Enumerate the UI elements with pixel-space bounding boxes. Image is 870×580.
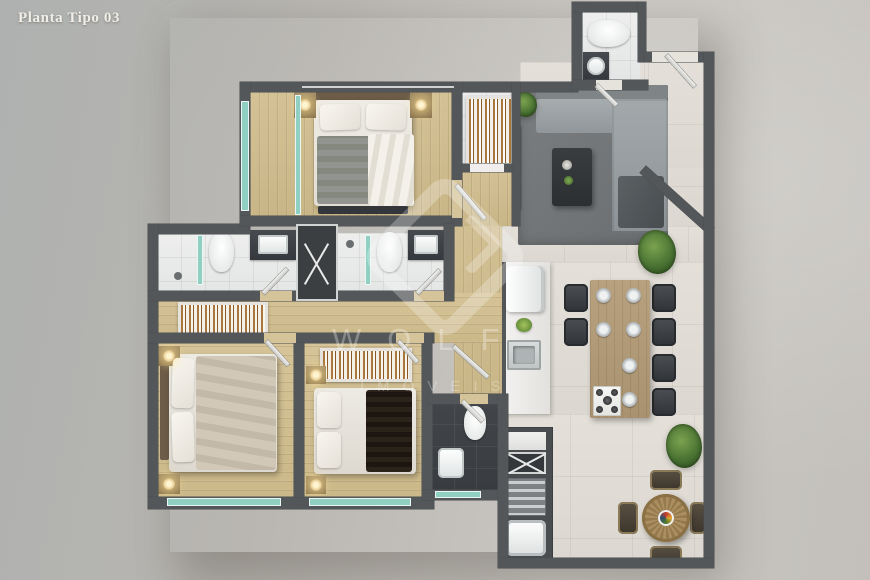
place-setting — [626, 322, 641, 337]
suite-pillow-right — [366, 103, 407, 130]
powder-room-toilet — [588, 20, 630, 47]
wall-left-outer — [148, 224, 158, 509]
bedroomA-pillow-1 — [171, 358, 195, 409]
wall-bath2-right — [444, 224, 454, 301]
cooktop-burner-1 — [596, 389, 603, 396]
living-plant — [638, 230, 676, 274]
drying-rack — [506, 478, 546, 516]
refrigerator — [506, 266, 544, 312]
coffee-table-plant-decor — [564, 176, 573, 185]
service-bathroom-sink — [438, 448, 464, 478]
cooktop-burner-5 — [611, 406, 618, 413]
bathroom1-shower-head — [174, 272, 182, 280]
cooktop-burner-3 — [603, 396, 612, 405]
suite-lamp-right — [415, 99, 427, 111]
suite-duvet-white — [368, 134, 414, 206]
bedroomB-window — [310, 499, 410, 505]
cooktop-burner-2 — [611, 389, 618, 396]
island-chair-6 — [652, 388, 676, 416]
bedroomA-lamp-top — [163, 350, 175, 362]
suite-pillow-left — [320, 103, 361, 130]
bedroomA-blanket — [196, 356, 276, 470]
bathroom2-sink — [414, 235, 438, 254]
wall-laundry-left — [498, 394, 508, 568]
wall-living-top — [520, 82, 578, 92]
threshold-closet — [470, 164, 504, 172]
servicebath-window — [436, 492, 480, 497]
island-chair-3 — [652, 284, 676, 312]
fruit-bowl — [516, 318, 532, 332]
bathroom2-toilet — [377, 232, 402, 272]
bedroomB-pillow-2 — [317, 432, 341, 468]
wall-powder-left — [572, 2, 582, 90]
suite-window-frame — [302, 86, 454, 88]
bathroom2-shower-glass — [366, 236, 370, 284]
wall-suite-bottom — [240, 216, 454, 226]
duct-shaft — [296, 224, 338, 301]
island-chair-5 — [652, 354, 676, 382]
place-setting — [626, 288, 641, 303]
wall-powder-top — [572, 2, 646, 12]
bedroomB-wardrobe-hangers — [320, 348, 412, 382]
bedroomB-dark-throw — [366, 390, 412, 472]
wall-bedroom-divider — [294, 343, 304, 497]
bedroomB-lamp-top — [310, 369, 322, 381]
terrace-chair-north — [650, 470, 682, 490]
laundry-shaft-x — [506, 452, 546, 474]
place-setting — [622, 358, 637, 373]
bathroom1-shower-glass — [198, 236, 202, 284]
laundry-tub — [506, 520, 546, 556]
island-chair-1 — [564, 284, 588, 312]
suite-closet-hangers — [466, 96, 514, 166]
bathroom1-toilet — [209, 232, 234, 272]
laundry-counter — [506, 432, 546, 450]
bathroom1-sink — [258, 235, 288, 254]
threshold-entry — [652, 52, 698, 62]
powder-room-sink — [587, 57, 605, 75]
wall-step-left — [148, 224, 250, 234]
wall-right-outer — [704, 52, 714, 568]
coffee-table-decor — [562, 160, 572, 170]
kitchen-sink-basin — [513, 346, 535, 364]
place-setting — [622, 392, 637, 407]
terrace-plant — [666, 424, 702, 468]
suite-balcony-window — [242, 102, 248, 210]
place-setting — [596, 322, 611, 337]
table-centerpiece — [658, 510, 674, 526]
wall-closet-right — [512, 82, 520, 226]
wall-bottom-right — [498, 558, 714, 568]
bedroomB-lamp-bottom — [310, 479, 322, 491]
suite-foot-bench — [318, 206, 408, 214]
cooktop-burner-4 — [596, 406, 603, 413]
bedroomB-pillow-1 — [317, 392, 341, 428]
floor-plan-render: WOLF IMÓVEIS Planta Tipo 03 — [0, 0, 870, 580]
bathroom2-shower-head — [346, 240, 354, 248]
bedroomA-lamp-bottom — [163, 478, 175, 490]
island-chair-4 — [652, 318, 676, 346]
bedroomA-window — [168, 499, 280, 505]
wall-bedroomB-right — [422, 333, 432, 500]
page-title: Planta Tipo 03 — [18, 10, 120, 27]
suite-lamp-left — [299, 99, 311, 111]
suite-balcony-glass-door — [296, 96, 300, 214]
bedroomA-headboard — [160, 356, 169, 460]
terrace-chair-west — [618, 502, 638, 534]
bedroomA-pillow-2 — [171, 412, 195, 463]
island-chair-2 — [564, 318, 588, 346]
place-setting — [596, 288, 611, 303]
